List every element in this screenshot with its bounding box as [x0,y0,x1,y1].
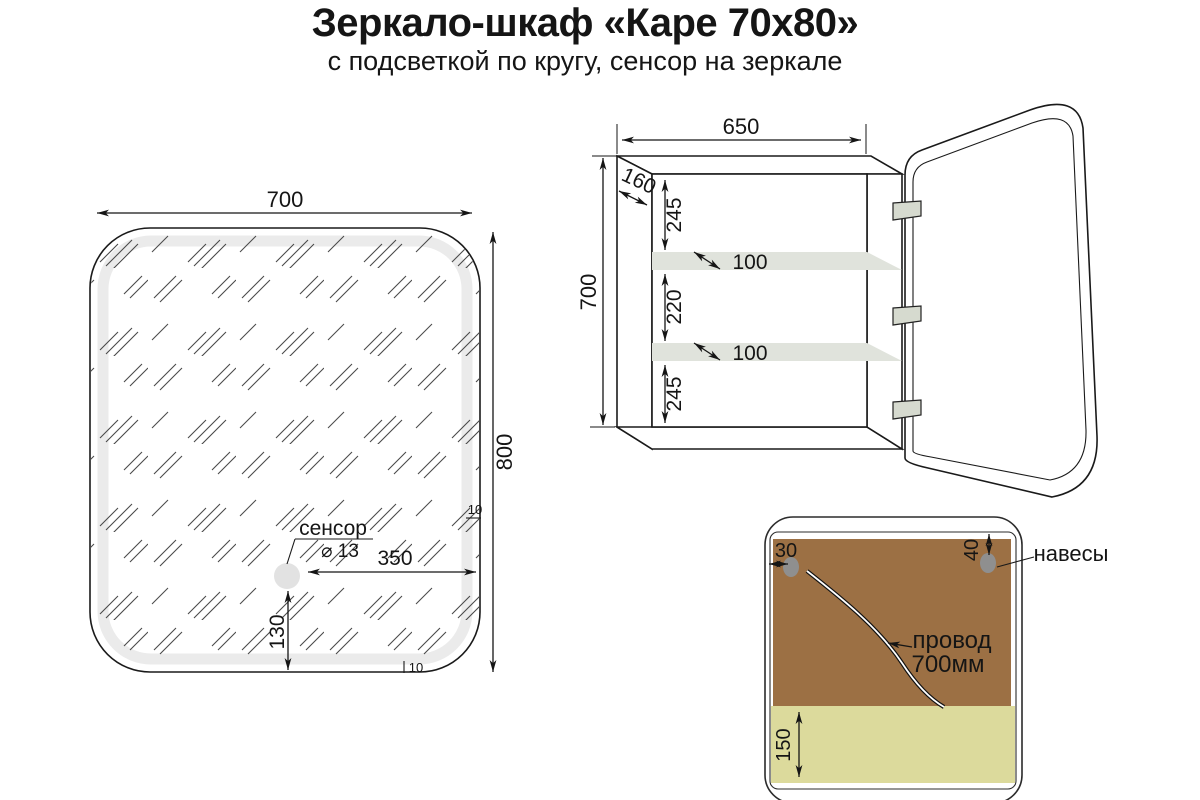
cabinet-bottom-face [617,427,902,449]
led-band-right-label: 10 [468,502,482,517]
cabinet-height-dim-label: 700 [576,274,601,311]
hangers-label: навесы [1034,541,1109,566]
shelf-bottom [652,343,902,361]
cabinet-width-dim-label: 650 [723,114,760,139]
page-subtitle: с подсветкой по кругу, сенсор на зеркале [0,46,1170,77]
cabinet-left-face [617,156,652,449]
bottom-strip [771,706,1015,783]
shelf-depth-bottom-label: 100 [732,342,767,365]
strip-height-label: 150 [773,728,795,761]
sensor-offset-y-label: 130 [266,614,289,649]
mirror-width-dim-label: 700 [267,187,304,212]
led-band-bottom-label: 10 [409,660,423,675]
sensor-diameter-label: ⌀ 13 [321,541,359,562]
mirror-glass-hatching [91,229,479,671]
hanger-top-offset-label: 40 [961,539,983,561]
shelf-top [652,252,902,270]
gap-top-label: 245 [663,197,686,232]
cabinet-open-view-drawing: 650 700 160 245 [560,90,1140,540]
cabinet-back-view-drawing: 30 40 навесы провод 700мм 150 [740,505,1180,800]
cabinet-door-open [905,104,1097,497]
sensor-dot [274,563,300,589]
hinge-icon [893,400,921,419]
cabinet-top-face [617,156,902,174]
mirror-front-view-drawing: 700 сенсор ⌀ 13 350 130 800 10 10 [60,180,530,700]
back-panel [773,539,1011,706]
gap-middle-label: 220 [663,289,686,324]
hanger-left-offset-label: 30 [775,540,797,562]
sensor-offset-x-label: 350 [377,547,412,570]
hinge-icon [893,201,921,220]
mirror-height-dim-label: 800 [492,434,517,471]
page-title: Зеркало-шкаф «Каре 70х80» [0,2,1170,44]
drawing-header: Зеркало-шкаф «Каре 70х80» с подсветкой п… [0,2,1170,77]
wire-label-line1: провод [913,627,992,654]
gap-bottom-label: 245 [663,376,686,411]
technical-drawing-page: Зеркало-шкаф «Каре 70х80» с подсветкой п… [0,0,1200,800]
sensor-label: сенсор [299,517,367,540]
wire-label-line2: 700мм [911,651,984,678]
shelf-depth-top-label: 100 [732,251,767,274]
hinge-icon [893,306,921,325]
